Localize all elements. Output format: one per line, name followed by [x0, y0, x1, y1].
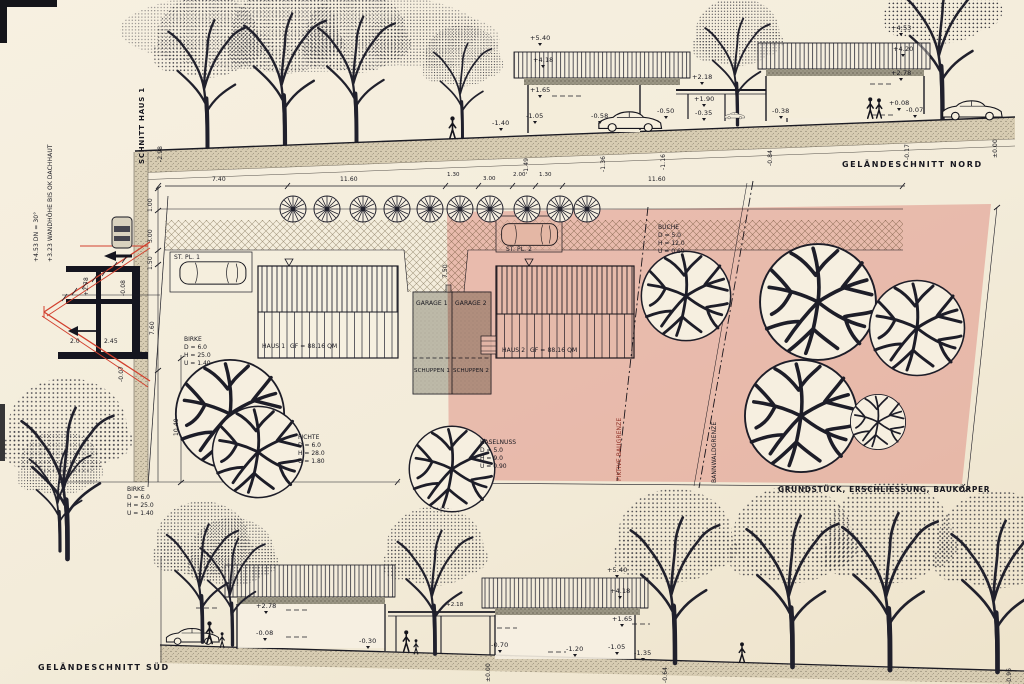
dim-label: 7.40: [212, 177, 226, 183]
dim-label: 11.60: [648, 177, 666, 183]
plan-tree-buche-icon: [641, 251, 730, 340]
tree-d: D = 5.0: [658, 232, 685, 240]
car-plan-small: [112, 217, 132, 248]
level-label: +4.18: [533, 57, 553, 68]
dim-label: 1.30: [447, 173, 460, 179]
car-icon: [943, 101, 1002, 120]
arrow-icon: [104, 251, 116, 261]
tree-name: FICHTE: [298, 434, 325, 442]
tree-d: D = 6.0: [184, 344, 211, 352]
dim-label: 7.60: [150, 321, 156, 335]
tree-icon: [933, 491, 1024, 672]
dim-label: 11.60: [340, 177, 358, 183]
parking-label-stpl1: ST. PL. 1: [174, 255, 200, 261]
tree-icon: [823, 482, 957, 670]
tree-label-birke-top: BIRKE D = 6.0 H = 25.0 U = 1.40: [184, 336, 211, 368]
level-label: -0.08: [121, 280, 127, 296]
level-label: -0.07: [906, 107, 923, 118]
plan-tree-fichte-icon: [212, 406, 303, 497]
tree-u: U = 1.40: [184, 360, 211, 368]
garage1-label: GARAGE 1: [416, 301, 448, 307]
tree-d: D = 5.0: [480, 447, 516, 455]
level-label: -0.58: [591, 113, 608, 124]
level-label: +2.18: [692, 74, 712, 85]
plan-tree-icon: [447, 196, 473, 222]
ground-level-label: -0.17: [905, 144, 911, 160]
level-label: +2.78: [891, 70, 911, 81]
dim-label: 1.30: [539, 173, 552, 179]
ground-level-label: -0.84: [768, 150, 774, 166]
dim-label: 7.50: [443, 264, 449, 278]
car-plan-icon: [180, 262, 246, 284]
plan-tree-icon: [870, 281, 965, 376]
tree-u: U = 0.60: [658, 248, 685, 256]
plot-caption: GRUNDSTÜCK, ERSCHLIESSUNG, BAUKÖRPER: [778, 486, 990, 494]
level-label: +2.78: [256, 603, 276, 614]
tree-d: D = 6.0: [298, 442, 325, 450]
tree-d: D = 6.0: [127, 494, 154, 502]
south-section-title: GELÄNDESCHNITT SÜD: [38, 664, 170, 672]
tree-name: BIRKE: [127, 486, 154, 494]
tree-label-buche: BUCHE D = 5.0 H = 12.0 U = 0.60: [658, 224, 685, 256]
ground-level-label: -1.16: [661, 154, 667, 170]
haus1-area-label: GF = 88.16 QM: [290, 344, 337, 350]
level-label: -1.20: [566, 646, 583, 657]
dim-label: 10.40: [174, 418, 180, 436]
level-label: +4.20: [893, 46, 913, 57]
roof-pitch-note: +4.53 DN = 30°: [34, 212, 40, 262]
section-title: SCHNITT HAUS 1: [139, 87, 146, 164]
level-label: -0.50: [657, 108, 674, 119]
plan-tree-icon: [574, 196, 600, 222]
level-label: -1.05: [608, 644, 625, 655]
tree-label-fichte: FICHTE D = 6.0 H = 28.0 U = 1.80: [298, 434, 325, 466]
entry-marker-icon: [285, 259, 293, 266]
plan-tree-icon: [547, 196, 573, 222]
tree-name: BIRKE: [184, 336, 211, 344]
level-label: -0.07: [119, 366, 125, 382]
architectural-site-plan-sheet: +5.40 +4.18 +1.65 -1.05 -1.40 -0.58 -0.5…: [0, 0, 1024, 684]
tree-h: H = 25.0: [184, 352, 211, 360]
tree-label-birke-bottom: BIRKE D = 6.0 H = 25.0 U = 1.40: [127, 486, 154, 518]
dim-label: 1.50: [148, 256, 154, 270]
tree-u: U = 0.90: [480, 463, 516, 471]
garage2-label: GARAGE 2: [455, 301, 487, 307]
level-label: -0.35: [695, 110, 712, 121]
haus1-label: HAUS 1: [262, 344, 285, 350]
level-label: +2.18: [446, 603, 463, 609]
dim-label: 1.00: [148, 198, 154, 212]
level-label: -0.08: [256, 630, 273, 641]
ground-level-label: -0.96: [1007, 668, 1013, 684]
tree-h: H = 12.0: [658, 240, 685, 248]
bannwaldgrenze-label: BANNWALDGRENZE: [712, 422, 718, 483]
tree-u: U = 1.80: [298, 458, 325, 466]
schuppen1-label: SCHUPPEN 1: [414, 369, 450, 375]
level-label: +1.65: [612, 616, 632, 627]
person-icon: [403, 630, 409, 651]
tree-label-haselnuss: HASELNUSS D = 5.0 H = 9.0 U = 0.90: [480, 439, 516, 471]
level-label: -2.98: [158, 146, 164, 162]
plan-tree-icon: [280, 196, 306, 222]
person-icon: [739, 642, 745, 662]
haus2-label: HAUS 2: [502, 348, 525, 354]
level-label: -0.30: [359, 638, 376, 649]
plan-tree-icon: [745, 360, 857, 472]
dim-label: 2.00: [513, 173, 526, 179]
plan-tree-icon: [477, 196, 503, 222]
plan-tree-icon: [514, 196, 540, 222]
level-label: +2.78: [84, 277, 90, 296]
schuppen2-label: SCHUPPEN 2: [453, 369, 489, 375]
level-label: +1.90: [694, 96, 714, 107]
level-label: +4.53: [891, 25, 911, 36]
plan-tree-icon: [760, 244, 876, 360]
car-icon: [725, 113, 745, 119]
ground-level-label: ±0.00: [486, 663, 492, 682]
level-label: -1.40: [492, 120, 509, 131]
level-label: +5.40: [607, 567, 627, 578]
plan-tree-icon: [850, 394, 905, 449]
dim-label: 2.0: [70, 339, 80, 345]
level-label: +1.65: [530, 87, 550, 98]
tree-h: H = 28.0: [298, 450, 325, 458]
haus2-area-label: GF = 88.16 QM: [530, 348, 577, 354]
level-label: -0.38: [772, 108, 789, 119]
tree-icon: [382, 507, 488, 654]
ground-level-label: -0.64: [663, 667, 669, 683]
tree-name: BUCHE: [658, 224, 685, 232]
tree-h: H = 25.0: [127, 502, 154, 510]
level-label: -1.35: [634, 650, 651, 661]
plan-tree-icon: [314, 196, 340, 222]
ground-level-label: -1.36: [601, 156, 607, 172]
drawing-linework: [0, 0, 1024, 684]
person-icon: [220, 632, 224, 647]
dim-label: 3.00: [148, 229, 154, 243]
plan-tree-icon: [384, 196, 410, 222]
level-label: -0.70: [491, 642, 508, 653]
fiktive-baugrenze-label: FIKTIVE BAUGRENZE: [617, 418, 623, 481]
tree-h: H = 9.0: [480, 455, 516, 463]
level-label: +5.40: [530, 35, 550, 46]
plan-tree-icon: [417, 196, 443, 222]
person-icon: [449, 116, 455, 138]
north-section-drawing: [120, 0, 1015, 180]
wall-height-note: +3.23 WANDHÖHE BIS OK DACHHAUT: [48, 144, 54, 262]
ground-level-label: ±0.00: [993, 139, 999, 158]
south-section-drawing: [152, 482, 1024, 684]
north-section-title: GELÄNDESCHNITT NORD: [842, 161, 983, 169]
tree-name: HASELNUSS: [480, 439, 516, 447]
tree-u: U = 1.40: [127, 510, 154, 518]
level-label: -1.05: [526, 113, 543, 124]
dim-label: 2.45: [104, 339, 118, 345]
plan-tree-icon: [350, 196, 376, 222]
person-icon: [414, 639, 418, 654]
dim-label: 3.00: [483, 177, 496, 183]
level-label: +4.18: [610, 588, 630, 599]
parking-label-stpl2: ST. PL. 2: [506, 247, 532, 253]
